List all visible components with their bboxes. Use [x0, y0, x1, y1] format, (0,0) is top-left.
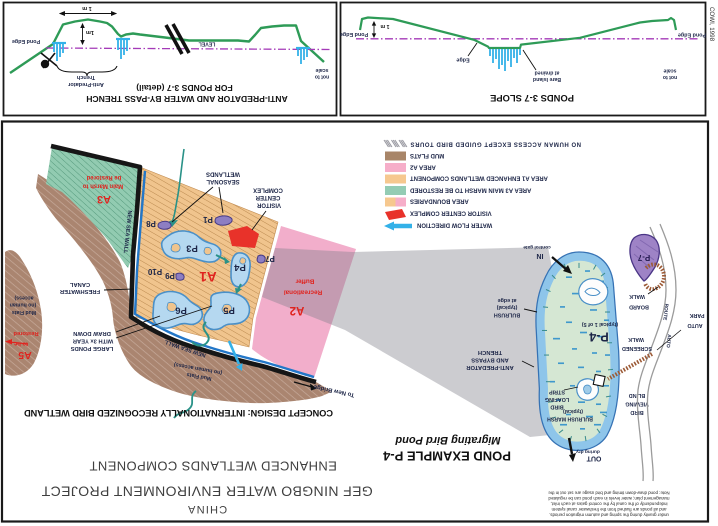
svg-text:OUT: OUT [586, 455, 602, 462]
svg-text:BIRD: BIRD [630, 409, 643, 415]
svg-text:Trench: Trench [76, 74, 95, 80]
svg-text:DRAW DOWN: DRAW DOWN [73, 330, 111, 336]
svg-text:VISITOR CENTER COMPLEX: VISITOR CENTER COMPLEX [410, 209, 492, 215]
svg-text:AREA BOUNDARIES: AREA BOUNDARIES [410, 197, 469, 203]
svg-text:A3: A3 [97, 193, 111, 205]
svg-text:scale: scale [315, 67, 328, 73]
svg-text:STRIP: STRIP [549, 389, 565, 395]
svg-text:P6: P6 [175, 305, 187, 316]
svg-text:at edge: at edge [498, 297, 517, 303]
svg-text:scale: scale [663, 68, 676, 74]
svg-text:access): access) [14, 295, 33, 301]
svg-text:A2: A2 [290, 304, 305, 316]
svg-text:VISITOR: VISITOR [256, 201, 281, 207]
svg-text:AUTO: AUTO [687, 322, 702, 328]
svg-text:POND EXAMPLE P-4: POND EXAMPLE P-4 [382, 448, 511, 463]
svg-text:Restored: Restored [13, 330, 39, 336]
svg-text:under gravity during the sprin: under gravity during the spring and autu… [549, 512, 669, 517]
svg-text:Buffer: Buffer [295, 278, 314, 285]
svg-text:CHINA: CHINA [187, 503, 227, 515]
svg-text:P3: P3 [186, 243, 198, 254]
svg-text:Pond Edge: Pond Edge [12, 38, 40, 44]
svg-text:1m: 1m [86, 29, 94, 35]
svg-text:Main Marsh to: Main Marsh to [83, 182, 124, 188]
svg-text:A5: A5 [18, 349, 32, 361]
svg-text:Note: pond draw-down timing an: Note: pond draw-down timing and bird usa… [548, 490, 670, 495]
svg-text:TRENCH: TRENCH [478, 349, 502, 355]
svg-text:independently of the canal by: independently of the canal by the contro… [551, 501, 668, 506]
svg-text:BULRUSH MARSH: BULRUSH MARSH [547, 416, 593, 422]
svg-text:MUD FLATS: MUD FLATS [410, 152, 444, 158]
svg-text:1 m: 1 m [82, 5, 92, 11]
svg-text:PARK: PARK [689, 312, 704, 318]
svg-text:BULRUSH: BULRUSH [494, 312, 520, 318]
svg-text:be Restored: be Restored [86, 174, 121, 180]
svg-text:AND BYPASS: AND BYPASS [471, 356, 509, 362]
svg-text:1 m: 1 m [380, 23, 389, 29]
svg-text:(no human: (no human [10, 302, 37, 308]
svg-text:during dry: during dry [576, 448, 600, 454]
svg-text:AREA A3 MAIN MARSH TO BE RESTO: AREA A3 MAIN MARSH TO BE RESTORED [409, 186, 531, 192]
svg-text:BIRD: BIRD [550, 404, 563, 410]
svg-text:Pond Edge: Pond Edge [678, 32, 706, 38]
svg-text:COMPLEX: COMPLEX [253, 186, 283, 192]
svg-text:COWI, 1998: COWI, 1998 [708, 7, 715, 42]
svg-text:LARGE PONDS: LARGE PONDS [71, 345, 114, 351]
svg-text:P8: P8 [146, 219, 156, 228]
svg-text:LOAFING: LOAFING [545, 396, 569, 402]
svg-text:and all ponds are flushed from: and all ponds are flushed from the fresh… [551, 507, 666, 512]
svg-text:WALK: WALK [629, 293, 645, 299]
svg-text:AREA A2: AREA A2 [409, 163, 436, 169]
svg-text:NO HUMAN ACCESS EXCEPT GUIDED: NO HUMAN ACCESS EXCEPT GUIDED BIRD TOURS [410, 140, 581, 146]
svg-text:P-4: P-4 [589, 330, 609, 344]
svg-text:P5: P5 [222, 305, 234, 316]
svg-text:Mud Flats: Mud Flats [12, 309, 36, 315]
svg-text:WETLANDS: WETLANDS [206, 170, 240, 176]
svg-text:CONCEPT DESIGN: INTERNATIONALL: CONCEPT DESIGN: INTERNATIONALLY RECOGNIZ… [24, 408, 333, 418]
svg-text:P10: P10 [147, 267, 162, 276]
svg-text:at drained: at drained [535, 70, 560, 76]
svg-text:P7: P7 [265, 254, 275, 263]
svg-text:(typical): (typical) [563, 408, 583, 414]
svg-text:CANAL: CANAL [69, 281, 90, 287]
svg-text:(typical 1 of 5): (typical 1 of 5) [582, 321, 618, 327]
svg-text:BOARD: BOARD [629, 304, 649, 310]
svg-text:P9: P9 [165, 271, 175, 280]
svg-text:not to: not to [663, 74, 677, 80]
svg-text:P4: P4 [233, 262, 245, 273]
svg-text:PONDS 3-7 SLOPE: PONDS 3-7 SLOPE [490, 93, 574, 104]
svg-text:IN: IN [537, 252, 544, 259]
svg-text:(typical): (typical) [496, 304, 517, 310]
svg-text:SCREENED: SCREENED [622, 345, 652, 351]
svg-text:WATER FLOW DIRECTION: WATER FLOW DIRECTION [417, 221, 492, 227]
svg-text:WITH 3x YEAR: WITH 3x YEAR [72, 337, 113, 343]
svg-text:Recreational: Recreational [284, 289, 323, 296]
svg-text:WALK: WALK [628, 336, 644, 342]
svg-text:P1: P1 [203, 215, 213, 224]
svg-text:Bare Island: Bare Island [533, 76, 561, 82]
svg-text:SEASONAL: SEASONAL [206, 178, 240, 184]
svg-text:management plan; water levels: management plan; water levels in each po… [548, 496, 670, 501]
svg-text:FOR PONDS 3-7 (detail): FOR PONDS 3-7 (detail) [136, 83, 233, 93]
svg-text:GEF NINGBO WATER ENVIRONMENT P: GEF NINGBO WATER ENVIRONMENT PROJECT [41, 484, 373, 500]
svg-text:CENTER: CENTER [255, 194, 280, 200]
svg-text:Edge: Edge [456, 57, 469, 63]
svg-text:control gate: control gate [523, 244, 551, 250]
svg-text:ENHANCED WETLANDS COMPONENT: ENHANCED WETLANDS COMPONENT [89, 458, 337, 473]
svg-text:ANTI-PREDATOR AND WATER BY-PAS: ANTI-PREDATOR AND WATER BY-PASS TRENCH [86, 94, 287, 104]
svg-text:Anti-Predator: Anti-Predator [67, 81, 104, 87]
svg-text:ANTI-PREDATOR: ANTI-PREDATOR [465, 364, 513, 370]
svg-text:Pond Edge: Pond Edge [340, 31, 368, 37]
svg-text:LEVEL: LEVEL [198, 41, 216, 47]
svg-text:P-7: P-7 [637, 253, 650, 262]
svg-text:Migrating Bird Pond: Migrating Bird Pond [395, 434, 500, 446]
svg-text:AREA A1 ENHANCED WETLANDS COMP: AREA A1 ENHANCED WETLANDS COMPONENT [410, 174, 548, 180]
svg-text:FRESHWATER: FRESHWATER [59, 288, 100, 294]
svg-text:A1: A1 [199, 269, 217, 284]
svg-text:not to: not to [315, 74, 329, 80]
